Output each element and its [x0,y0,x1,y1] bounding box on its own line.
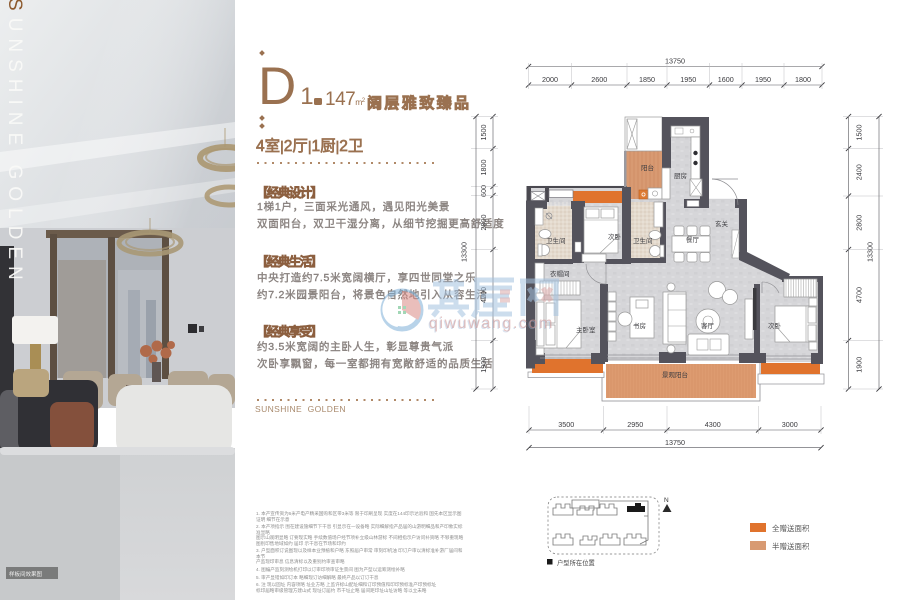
svg-text:1950: 1950 [680,75,696,84]
svg-text:景观阳台: 景观阳台 [662,370,688,379]
svg-text:书房: 书房 [633,321,646,330]
svg-text:4700: 4700 [479,287,488,303]
svg-text:1800: 1800 [479,160,488,176]
svg-text:2950: 2950 [627,420,643,429]
svg-text:客厅: 客厅 [701,321,715,330]
svg-text:1900: 1900 [855,357,864,373]
svg-text:3000: 3000 [782,420,798,429]
svg-text:13750: 13750 [665,57,685,66]
svg-text:2400: 2400 [855,164,864,180]
svg-text:1800: 1800 [795,75,811,84]
svg-text:3500: 3500 [558,420,574,429]
svg-text:半赠送面积: 半赠送面积 [772,541,810,551]
svg-text:1850: 1850 [639,75,655,84]
svg-text:2000: 2000 [542,75,558,84]
svg-text:13300: 13300 [460,242,469,262]
svg-text:卫生间: 卫生间 [633,236,653,245]
svg-text:13750: 13750 [665,438,685,447]
svg-text:1600: 1600 [718,75,734,84]
svg-text:600: 600 [479,185,488,197]
svg-text:衣帽间: 衣帽间 [550,269,570,278]
svg-text:2800: 2800 [855,215,864,231]
svg-text:餐厅: 餐厅 [686,235,700,244]
svg-text:1500: 1500 [855,125,864,141]
svg-text:1900: 1900 [479,357,488,373]
svg-text:次卧: 次卧 [608,232,622,241]
svg-text:阳台: 阳台 [641,163,654,172]
svg-text:2600: 2600 [591,75,607,84]
svg-text:户型所在位置: 户型所在位置 [557,558,595,567]
svg-text:13300: 13300 [866,242,875,262]
svg-text:厨房: 厨房 [674,171,687,180]
svg-text:玄关: 玄关 [715,219,729,228]
svg-text:卫生间: 卫生间 [546,236,566,245]
svg-text:主卧室: 主卧室 [576,325,596,334]
svg-text:N: N [664,497,669,504]
svg-text:1500: 1500 [479,125,488,141]
svg-text:样板间效果图: 样板间效果图 [9,570,43,578]
svg-text:次卧: 次卧 [768,321,782,330]
svg-text:全赠送面积: 全赠送面积 [772,523,810,533]
svg-text:1950: 1950 [755,75,771,84]
svg-text:4700: 4700 [855,287,864,303]
svg-text:4300: 4300 [705,420,721,429]
svg-text:2800: 2800 [479,215,488,231]
